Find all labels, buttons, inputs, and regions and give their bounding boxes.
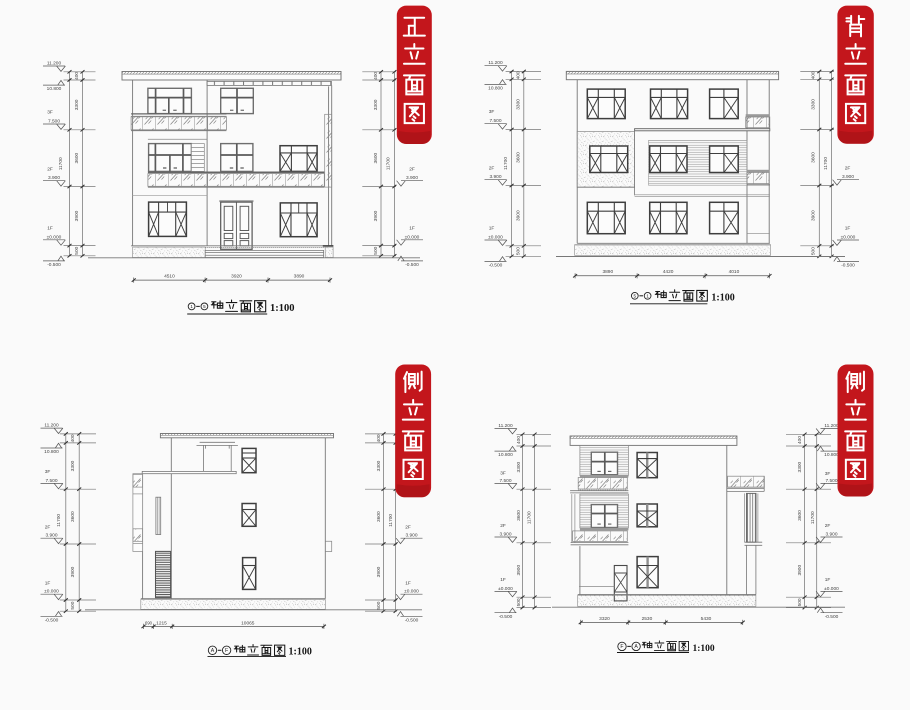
- svg-text:11700: 11700: [56, 514, 62, 527]
- svg-text:3.900: 3.900: [48, 175, 60, 181]
- svg-text:3900: 3900: [515, 210, 521, 221]
- svg-text:10065: 10065: [241, 621, 255, 627]
- svg-text:3900: 3900: [70, 566, 76, 577]
- svg-text:A: A: [211, 648, 215, 654]
- svg-text:3920: 3920: [231, 274, 242, 280]
- svg-text:3F: 3F: [825, 471, 831, 477]
- svg-text:3.900: 3.900: [405, 533, 417, 539]
- svg-text:-0.500: -0.500: [405, 617, 419, 623]
- svg-text:400: 400: [810, 71, 816, 79]
- svg-text:5: 5: [203, 304, 206, 309]
- svg-text:2530: 2530: [642, 616, 653, 622]
- svg-text:500: 500: [74, 246, 80, 254]
- svg-text:1F: 1F: [489, 226, 495, 232]
- svg-text:2F: 2F: [47, 166, 53, 172]
- svg-text:3300: 3300: [373, 99, 379, 110]
- svg-text:3F: 3F: [47, 110, 53, 116]
- svg-text:10.800: 10.800: [47, 86, 62, 92]
- svg-text:4010: 4010: [729, 269, 740, 275]
- svg-text:10.800: 10.800: [498, 452, 513, 458]
- svg-text:400: 400: [515, 71, 521, 79]
- svg-text:3.900: 3.900: [489, 174, 501, 180]
- svg-text:3.900: 3.900: [406, 175, 418, 181]
- svg-text:F: F: [620, 644, 623, 650]
- svg-text:400: 400: [373, 72, 379, 80]
- svg-text:500: 500: [70, 601, 76, 609]
- svg-text:3300: 3300: [70, 460, 76, 471]
- svg-text:1215: 1215: [156, 621, 167, 627]
- svg-text:-0.500: -0.500: [489, 263, 503, 269]
- svg-text:3600: 3600: [373, 152, 379, 163]
- svg-text:±0.000: ±0.000: [488, 235, 503, 241]
- svg-text:11700: 11700: [386, 157, 392, 170]
- svg-text:3300: 3300: [797, 461, 803, 472]
- svg-text:400: 400: [376, 434, 382, 442]
- svg-text:5430: 5430: [701, 616, 712, 622]
- svg-text:11700: 11700: [526, 511, 532, 524]
- svg-text:3F: 3F: [45, 469, 51, 475]
- svg-text:11.200: 11.200: [44, 423, 59, 429]
- svg-text:3600: 3600: [74, 152, 80, 163]
- svg-text:400: 400: [516, 436, 522, 444]
- svg-text:1:100: 1:100: [711, 293, 734, 304]
- svg-text:3900: 3900: [373, 210, 379, 221]
- svg-text:±0.000: ±0.000: [44, 589, 59, 595]
- svg-text:3300: 3300: [74, 99, 80, 110]
- svg-text:3600: 3600: [516, 510, 522, 521]
- svg-text:±0.000: ±0.000: [47, 234, 62, 240]
- svg-text:690: 690: [145, 620, 153, 625]
- svg-text:3900: 3900: [810, 210, 816, 221]
- svg-text:3600: 3600: [376, 511, 382, 522]
- svg-text:11700: 11700: [810, 511, 816, 524]
- svg-text:-0.500: -0.500: [47, 262, 61, 268]
- svg-text:11.200: 11.200: [824, 423, 839, 429]
- svg-text:500: 500: [516, 598, 522, 606]
- svg-text:400: 400: [74, 72, 80, 80]
- svg-text:1F: 1F: [45, 581, 51, 587]
- svg-text:3890: 3890: [602, 269, 613, 275]
- svg-text:5: 5: [634, 293, 637, 298]
- svg-text:3300: 3300: [516, 461, 522, 472]
- svg-text:1F: 1F: [409, 226, 415, 232]
- svg-text:3.900: 3.900: [825, 532, 837, 538]
- svg-text:±0.000: ±0.000: [404, 589, 419, 595]
- svg-text:11700: 11700: [388, 514, 394, 527]
- svg-text:1F: 1F: [825, 577, 831, 583]
- svg-text:2F: 2F: [409, 166, 415, 172]
- svg-text:10.800: 10.800: [824, 452, 839, 458]
- svg-text:500: 500: [376, 601, 382, 609]
- svg-text:3.900: 3.900: [45, 533, 57, 539]
- svg-text:500: 500: [810, 247, 816, 255]
- svg-text:1F: 1F: [845, 226, 851, 232]
- svg-text:-0.500: -0.500: [499, 614, 513, 620]
- svg-text:10.800: 10.800: [44, 449, 59, 455]
- svg-text:1F: 1F: [500, 577, 506, 583]
- svg-text:1F: 1F: [405, 581, 411, 587]
- svg-text:3600: 3600: [810, 152, 816, 163]
- svg-text:2F: 2F: [825, 523, 831, 529]
- svg-text:A: A: [634, 644, 638, 650]
- svg-text:4420: 4420: [663, 269, 674, 275]
- svg-text:2F: 2F: [405, 525, 411, 531]
- svg-text:-0.500: -0.500: [825, 614, 839, 620]
- svg-text:2F: 2F: [489, 165, 495, 171]
- svg-text:3890: 3890: [294, 274, 305, 280]
- svg-text:1F: 1F: [47, 226, 53, 232]
- svg-text:1:100: 1:100: [693, 644, 715, 654]
- svg-text:3300: 3300: [515, 99, 521, 110]
- svg-text:500: 500: [373, 246, 379, 254]
- svg-text:11700: 11700: [503, 157, 509, 170]
- svg-text:3320: 3320: [599, 616, 610, 622]
- svg-text:11.200: 11.200: [47, 61, 62, 67]
- svg-text:-0.500: -0.500: [841, 263, 855, 269]
- svg-text:7.500: 7.500: [48, 119, 60, 125]
- svg-text:3600: 3600: [797, 510, 803, 521]
- svg-text:500: 500: [797, 598, 803, 606]
- svg-text:1: 1: [190, 304, 193, 309]
- svg-text:400: 400: [70, 434, 76, 442]
- svg-text:2F: 2F: [845, 165, 851, 171]
- svg-text:3F: 3F: [500, 471, 506, 477]
- svg-text:2F: 2F: [45, 525, 51, 531]
- svg-text:10.800: 10.800: [488, 86, 503, 92]
- svg-text:11.200: 11.200: [498, 423, 513, 429]
- svg-text:-0.500: -0.500: [45, 617, 59, 623]
- svg-text:3600: 3600: [70, 511, 76, 522]
- svg-text:3900: 3900: [376, 566, 382, 577]
- svg-text:3900: 3900: [516, 565, 522, 576]
- svg-text:3300: 3300: [810, 99, 816, 110]
- svg-text:3300: 3300: [376, 460, 382, 471]
- svg-text:±0.000: ±0.000: [405, 234, 420, 240]
- svg-text:4510: 4510: [164, 274, 175, 280]
- svg-text:±0.000: ±0.000: [498, 586, 513, 592]
- svg-text:1:100: 1:100: [289, 647, 312, 658]
- svg-text:±0.000: ±0.000: [841, 235, 856, 241]
- svg-text:3900: 3900: [797, 565, 803, 576]
- svg-text:400: 400: [797, 436, 803, 444]
- svg-text:3F: 3F: [489, 109, 495, 115]
- svg-text:3.900: 3.900: [842, 174, 854, 180]
- svg-text:3900: 3900: [74, 210, 80, 221]
- svg-text:±0.000: ±0.000: [824, 586, 839, 592]
- svg-text:7.500: 7.500: [825, 478, 837, 484]
- svg-text:2F: 2F: [500, 523, 506, 529]
- svg-text:-0.500: -0.500: [405, 262, 419, 268]
- svg-text:1:100: 1:100: [270, 303, 295, 314]
- svg-text:11.200: 11.200: [488, 60, 503, 66]
- svg-text:7.500: 7.500: [45, 478, 57, 484]
- svg-text:1: 1: [646, 293, 649, 298]
- svg-text:7.500: 7.500: [499, 478, 511, 484]
- svg-text:11700: 11700: [823, 157, 829, 170]
- svg-text:11700: 11700: [58, 157, 64, 170]
- svg-text:7.500: 7.500: [489, 118, 501, 124]
- svg-text:3.900: 3.900: [499, 532, 511, 538]
- svg-text:3600: 3600: [515, 152, 521, 163]
- svg-text:500: 500: [515, 247, 521, 255]
- svg-text:F: F: [225, 648, 228, 654]
